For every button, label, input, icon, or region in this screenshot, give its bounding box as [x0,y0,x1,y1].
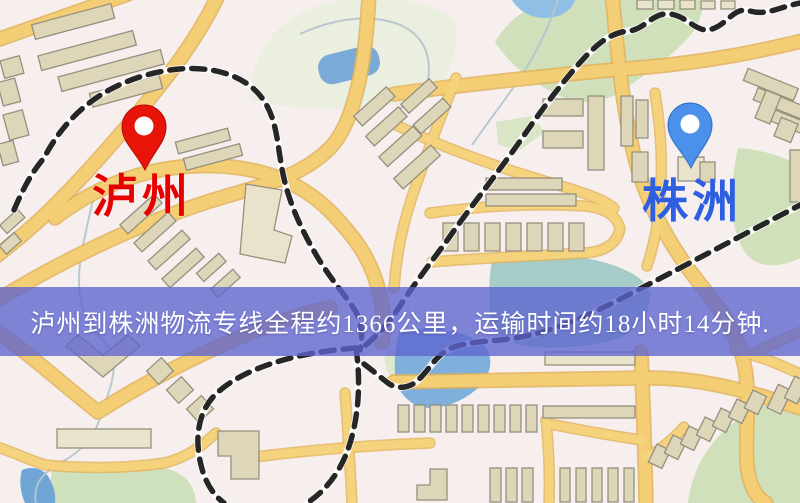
origin-city-label: 泸州 [92,174,192,220]
origin-pin-marker[interactable] [119,101,169,173]
red-map-pin-icon [119,101,169,173]
destination-city-label: 株洲 [642,179,742,225]
map-screenshot: 泸州 株洲 泸州到株洲物流专线全程约1366公里，运输时间约18小时14分钟. [0,0,800,503]
route-info-text: 泸州到株洲物流专线全程约1366公里，运输时间约18小时14分钟. [30,304,769,340]
map-artwork [0,0,800,503]
blue-map-pin-icon [665,99,715,171]
destination-pin-marker[interactable] [665,99,715,171]
route-info-banner: 泸州到株洲物流专线全程约1366公里，运输时间约18小时14分钟. [0,287,800,356]
